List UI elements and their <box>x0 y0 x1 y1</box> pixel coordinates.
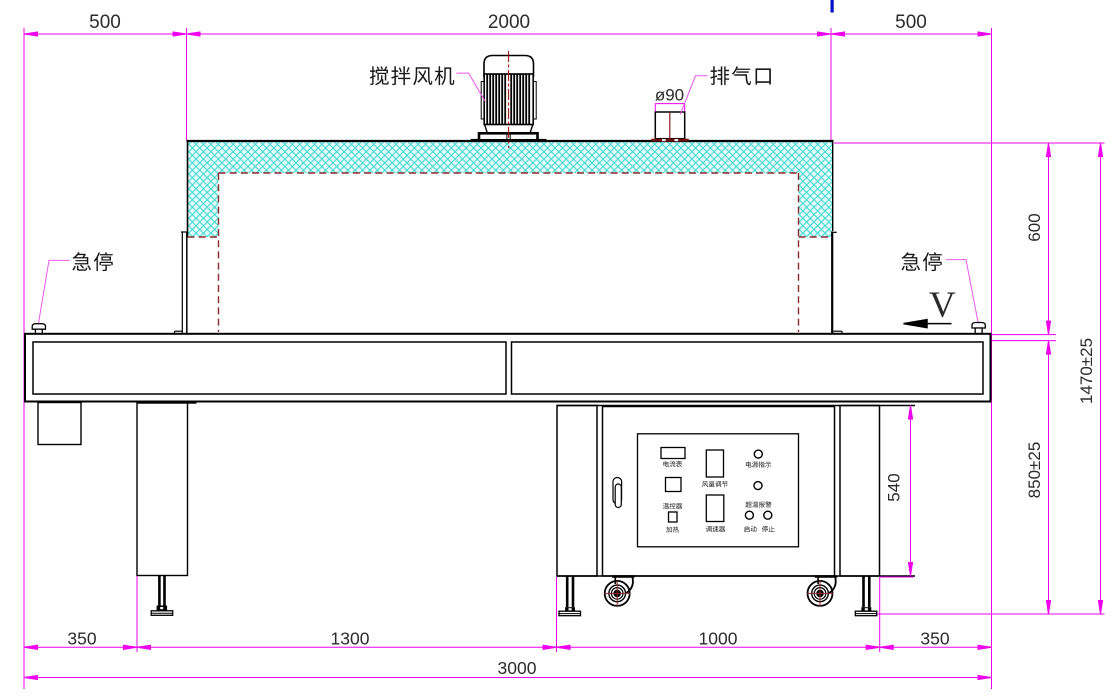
svg-text:540: 540 <box>885 473 904 501</box>
svg-text:1470±25: 1470±25 <box>1077 338 1096 404</box>
svg-text:500: 500 <box>89 12 121 33</box>
svg-text:V: V <box>929 285 956 326</box>
svg-text:1000: 1000 <box>699 629 738 649</box>
svg-text:850±25: 850±25 <box>1025 442 1044 499</box>
svg-text:ø90: ø90 <box>655 86 684 105</box>
svg-text:3000: 3000 <box>498 658 537 678</box>
svg-text:350: 350 <box>67 629 96 649</box>
svg-text:1300: 1300 <box>331 629 370 649</box>
svg-text:600: 600 <box>1025 213 1044 241</box>
svg-text:2000: 2000 <box>488 12 530 33</box>
svg-text:500: 500 <box>895 12 927 33</box>
svg-text:350: 350 <box>920 629 949 649</box>
